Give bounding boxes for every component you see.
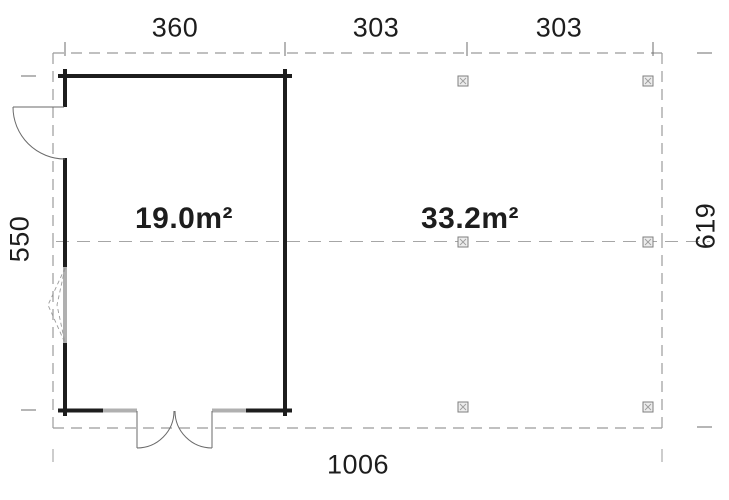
dim-label-top-1: 360 [152,15,199,42]
side-door-swing-arc [13,107,65,159]
roof-overhang-outline [53,53,662,428]
window-opening-symbol [48,268,65,343]
plan-linework [0,0,729,500]
window-glazing [65,267,246,411]
side-door [13,107,65,159]
area-label-cabin: 19.0m² [135,204,233,234]
floor-plan-drawing: 360 303 303 550 619 1006 19.0m² 33.2m² [0,0,729,500]
cabin-walls [58,69,292,416]
dim-label-bottom: 1006 [327,452,389,479]
dim-label-top-2: 303 [353,15,400,42]
dimension-ticks [21,42,712,462]
double-door-arc-left [137,411,174,448]
carport-posts [458,76,653,412]
dim-label-top-3: 303 [536,15,583,42]
double-door-arc-right [175,411,212,448]
double-door [137,411,212,448]
area-label-carport: 33.2m² [421,204,519,234]
dim-label-left: 550 [7,216,34,263]
dim-label-right: 619 [693,203,720,250]
